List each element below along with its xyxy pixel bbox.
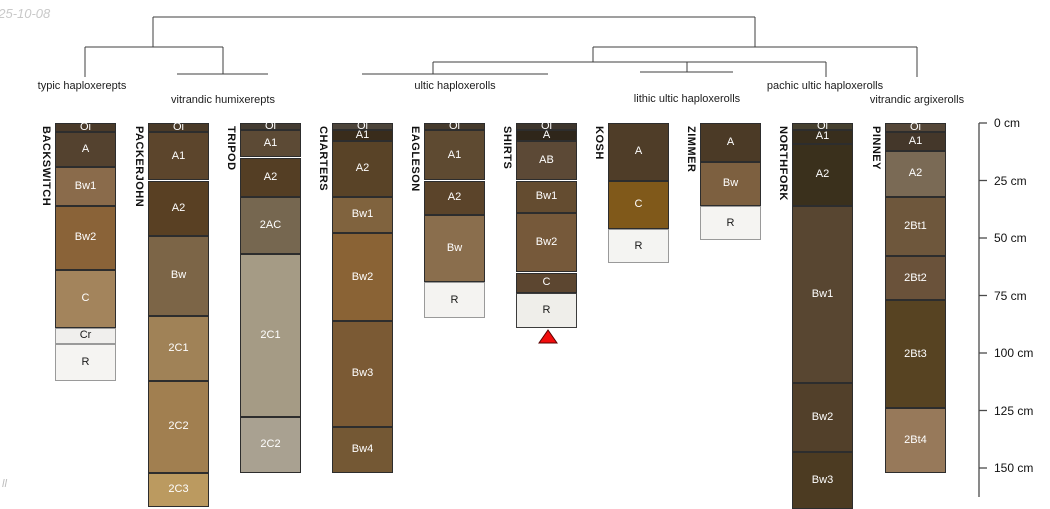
horizon: A [55, 132, 116, 167]
horizon: Bw2 [792, 383, 853, 452]
profile-name-label: PINNEY [870, 126, 882, 170]
profile-column: OiABw1Bw2CCrR [55, 0, 116, 500]
horizon: R [700, 206, 761, 241]
horizon: A1 [424, 130, 485, 181]
horizon: A2 [240, 158, 301, 197]
horizon: C [608, 181, 669, 229]
horizon: Bw1 [792, 206, 853, 383]
profile-name-label: TRIPOD [225, 126, 237, 171]
profile-name-label: PACKERJOHN [133, 126, 145, 207]
horizon: AB [516, 141, 577, 180]
horizon: A2 [424, 181, 485, 216]
horizon: C [516, 273, 577, 294]
profile-column: OiA1A22AC2C12C2 [240, 0, 301, 500]
dendrogram-and-chart-layer: 0 cm25 cm50 cm75 cm100 cm125 cm150 cmtyp… [0, 0, 1050, 500]
corner-watermark: ll [2, 478, 7, 490]
horizon: Bw [424, 215, 485, 282]
horizon: A1 [332, 130, 393, 142]
horizon: 2C1 [240, 254, 301, 417]
horizon: A [700, 123, 761, 162]
horizon: A2 [332, 141, 393, 196]
horizon: R [516, 293, 577, 328]
horizon: 2Bt1 [885, 197, 946, 257]
horizon: Bw1 [55, 167, 116, 206]
profile-column: OiA1A2Bw1Bw2Bw3Bw4 [332, 0, 393, 500]
profile-column: ACR [608, 0, 669, 500]
horizon: Bw2 [516, 213, 577, 273]
horizon: Oi [792, 123, 853, 130]
profile-name-label: BACKSWITCH [40, 126, 52, 206]
horizon: 2Bt2 [885, 256, 946, 300]
horizon: 2Bt4 [885, 408, 946, 472]
horizon: 2C1 [148, 316, 209, 380]
horizon: Oi [240, 123, 301, 130]
horizon: R [55, 344, 116, 381]
horizon: A1 [792, 130, 853, 144]
horizon: Oi [885, 123, 946, 132]
horizon: Oi [424, 123, 485, 130]
profile-name-label: SHIRTS [501, 126, 513, 169]
horizon: A2 [148, 181, 209, 236]
profile-column: OiA1A22Bt12Bt22Bt32Bt4 [885, 0, 946, 500]
horizon: R [608, 229, 669, 264]
horizon: 2AC [240, 197, 301, 255]
horizon: Bw4 [332, 427, 393, 473]
horizon: Bw3 [332, 321, 393, 427]
horizon: Bw2 [332, 233, 393, 320]
profile-name-label: KOSH [593, 126, 605, 160]
profile-column: OiA1A2BwR [424, 0, 485, 500]
horizon: Oi [55, 123, 116, 132]
horizon: A1 [240, 130, 301, 158]
horizon: Bw3 [792, 452, 853, 509]
horizon: A1 [148, 132, 209, 180]
horizon: C [55, 270, 116, 328]
horizon: A1 [885, 132, 946, 150]
horizon: 2Bt3 [885, 300, 946, 408]
profile-column: OiAABBw1Bw2CR [516, 0, 577, 500]
horizon: Bw [700, 162, 761, 206]
horizon: A2 [792, 144, 853, 206]
profile-name-label: EAGLESON [409, 126, 421, 192]
horizon: R [424, 282, 485, 319]
profile-name-label: NORTHFORK [777, 126, 789, 201]
profile-name-label: CHARTERS [317, 126, 329, 191]
horizon: Cr [55, 328, 116, 344]
horizon: 2C2 [240, 417, 301, 472]
profile-column: OiA1A2Bw1Bw2Bw3 [792, 0, 853, 500]
horizon: Bw1 [332, 197, 393, 234]
horizon: 2C2 [148, 381, 209, 473]
horizon: Bw1 [516, 181, 577, 213]
profile-column: OiA1A2Bw2C12C22C3 [148, 0, 209, 500]
horizon: Bw [148, 236, 209, 317]
profile-column: ABwR [700, 0, 761, 500]
horizon: 2C3 [148, 473, 209, 508]
horizon: A [608, 123, 669, 181]
horizon: A2 [885, 151, 946, 197]
profile-name-label: ZIMMER [685, 126, 697, 172]
horizon: Oi [148, 123, 209, 132]
horizon: A [516, 130, 577, 142]
horizon: Bw2 [55, 206, 116, 270]
